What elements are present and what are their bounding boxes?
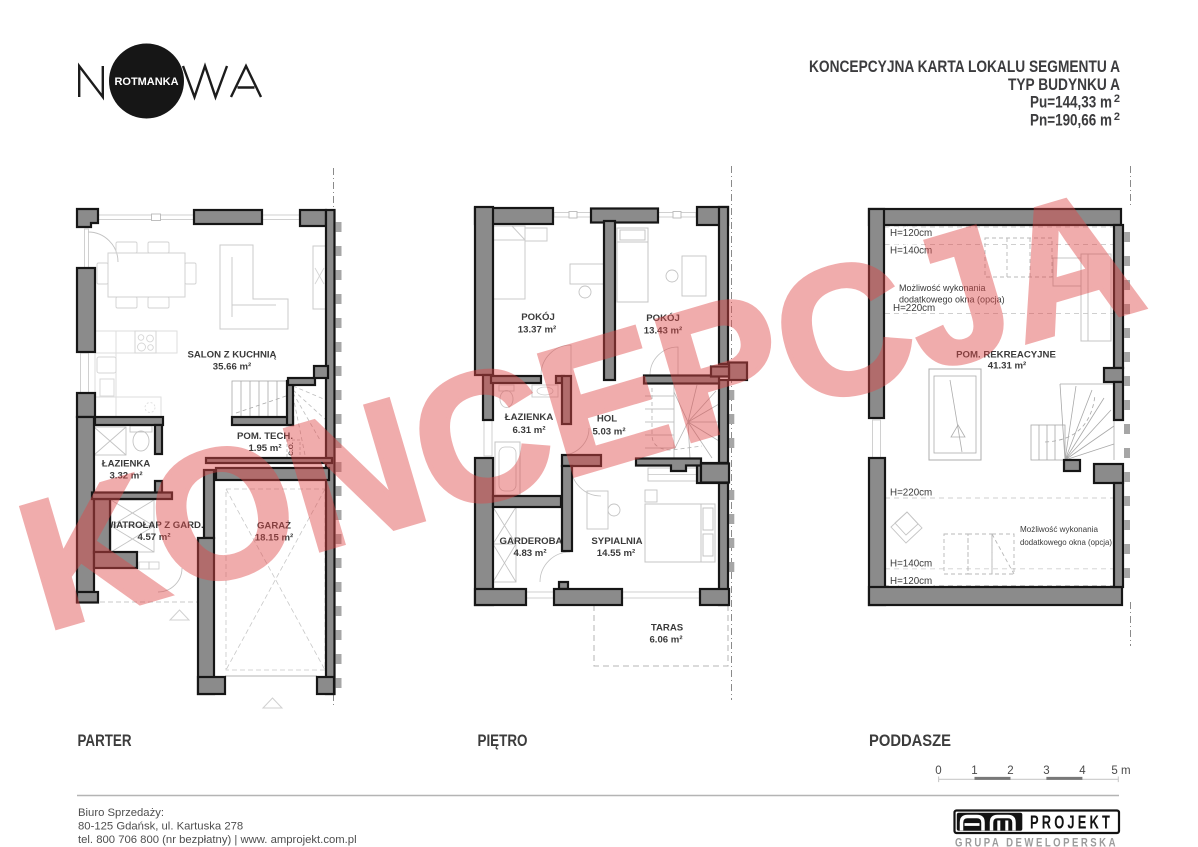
svg-text:35.66 m²: 35.66 m² — [213, 362, 251, 373]
svg-text:GARDEROBA: GARDEROBA — [500, 536, 563, 547]
svg-text:80-125 Gdańsk, ul. Kartuska 27: 80-125 Gdańsk, ul. Kartuska 278 — [78, 821, 243, 833]
svg-text:2: 2 — [1114, 93, 1120, 105]
svg-text:Możliwość wykonania: Możliwość wykonania — [1020, 524, 1098, 534]
svg-text:2: 2 — [1007, 765, 1013, 777]
svg-text:5 m: 5 m — [1111, 765, 1130, 777]
svg-text:PARTER: PARTER — [78, 732, 132, 750]
svg-text:Pu=144,33 m: Pu=144,33 m — [1030, 94, 1112, 112]
svg-text:4: 4 — [1079, 765, 1086, 777]
svg-text:PODDASZE: PODDASZE — [869, 732, 951, 750]
svg-text:SALON Z KUCHNIĄ: SALON Z KUCHNIĄ — [187, 350, 276, 361]
svg-text:TYP BUDYNKU A: TYP BUDYNKU A — [1008, 76, 1120, 94]
svg-text:ROTMANKA: ROTMANKA — [115, 76, 179, 88]
svg-text:4.83 m²: 4.83 m² — [513, 548, 546, 559]
svg-text:PROJEKT: PROJEKT — [1030, 812, 1113, 833]
svg-text:H=220cm: H=220cm — [890, 488, 932, 499]
svg-text:tel. 800 706 800 (nr bezpłatny: tel. 800 706 800 (nr bezpłatny) | www. a… — [78, 834, 357, 846]
svg-text:dodatkowego okna (opcja): dodatkowego okna (opcja) — [1020, 537, 1112, 547]
svg-text:14.55 m²: 14.55 m² — [597, 548, 635, 559]
svg-text:TARAS: TARAS — [651, 623, 684, 634]
svg-text:2: 2 — [1114, 111, 1120, 123]
svg-text:3: 3 — [1043, 765, 1049, 777]
svg-text:0: 0 — [935, 765, 941, 777]
svg-text:PIĘTRO: PIĘTRO — [478, 732, 528, 750]
svg-text:6.06 m²: 6.06 m² — [649, 635, 682, 646]
svg-text:GRUPA DEWELOPERSKA: GRUPA DEWELOPERSKA — [955, 838, 1118, 847]
svg-text:H=120cm: H=120cm — [890, 576, 932, 587]
svg-text:Biuro Sprzedaży:: Biuro Sprzedaży: — [78, 807, 164, 819]
svg-text:H=140cm: H=140cm — [890, 559, 932, 570]
svg-text:KONCEPCYJNA KARTA LOKALU SEGME: KONCEPCYJNA KARTA LOKALU SEGMENTU A — [809, 58, 1120, 76]
svg-text:1: 1 — [971, 765, 977, 777]
svg-text:Pn=190,66 m: Pn=190,66 m — [1030, 112, 1112, 130]
svg-text:SYPIALNIA: SYPIALNIA — [591, 536, 642, 547]
